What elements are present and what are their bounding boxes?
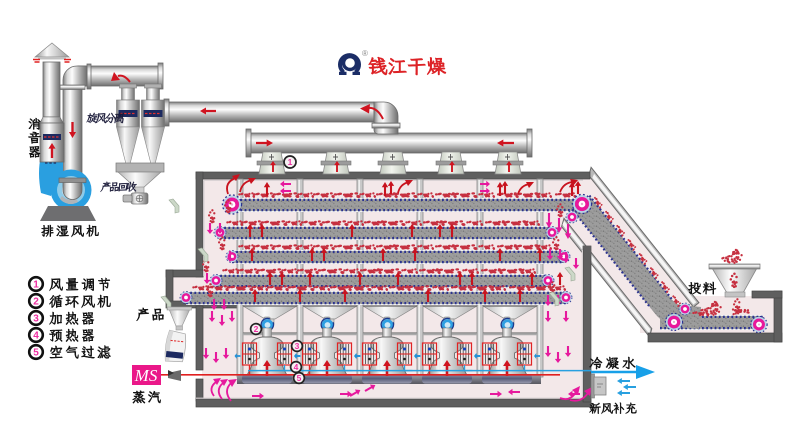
svg-text:1: 1 bbox=[33, 280, 39, 291]
svg-text:1: 1 bbox=[288, 157, 293, 167]
svg-text:3: 3 bbox=[295, 341, 300, 351]
svg-text:4: 4 bbox=[294, 362, 299, 372]
svg-text:5: 5 bbox=[33, 348, 39, 359]
svg-text:®: ® bbox=[362, 49, 368, 58]
svg-text:2: 2 bbox=[254, 324, 259, 334]
svg-text:2: 2 bbox=[33, 297, 39, 308]
svg-text:5: 5 bbox=[297, 373, 302, 383]
svg-text:MS: MS bbox=[134, 366, 158, 385]
svg-text:3: 3 bbox=[33, 314, 39, 325]
svg-text:4: 4 bbox=[33, 331, 39, 342]
